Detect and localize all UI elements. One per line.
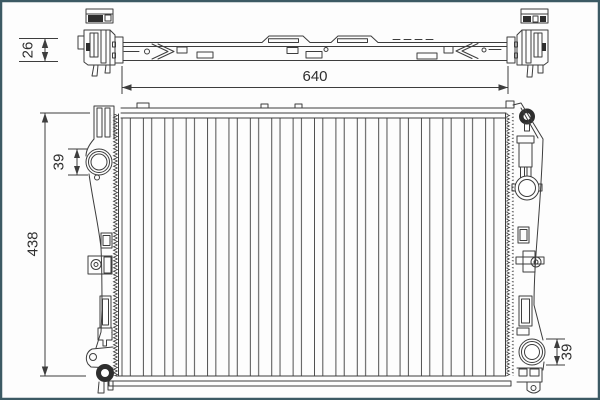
right-side-plate-serration [507,113,514,376]
dimension-outlet-port: 39 [546,339,576,365]
dim-label-26: 26 [20,42,37,59]
outlet-port [519,339,545,365]
drain-plug [99,367,112,380]
top-view [78,9,548,77]
front-right-tank [512,103,545,393]
top-view-left-cap [78,9,115,76]
right-fitting-bracket [516,251,544,272]
dimension-overall-height: 438 [25,113,91,376]
dim-label-640: 640 [302,68,327,85]
top-view-crossmember [113,36,518,63]
dim-label-39-outlet: 39 [559,344,576,361]
dimension-core-width: 640 [122,66,508,94]
radiator-technical-drawing: 26 640 438 39 [0,0,600,400]
right-bottom-bracket [517,368,542,393]
dim-label-39-inlet: 39 [51,154,68,171]
mounting-pin [521,111,533,131]
radiator-technical-drawing-page: 26 640 438 39 [0,0,600,400]
dim-label-438: 438 [25,231,42,256]
filler-cap [512,176,542,200]
dimension-top-depth: 26 [19,39,58,62]
left-fitting-bracket [88,256,112,274]
left-bottom-bracket [86,347,113,368]
top-view-right-cap [517,9,548,77]
front-view [86,101,545,393]
front-core [109,101,514,386]
core-tube-pattern [121,118,506,376]
inlet-port [86,149,112,180]
dimension-inlet-port: 39 [51,149,89,175]
front-left-tank [86,106,114,393]
